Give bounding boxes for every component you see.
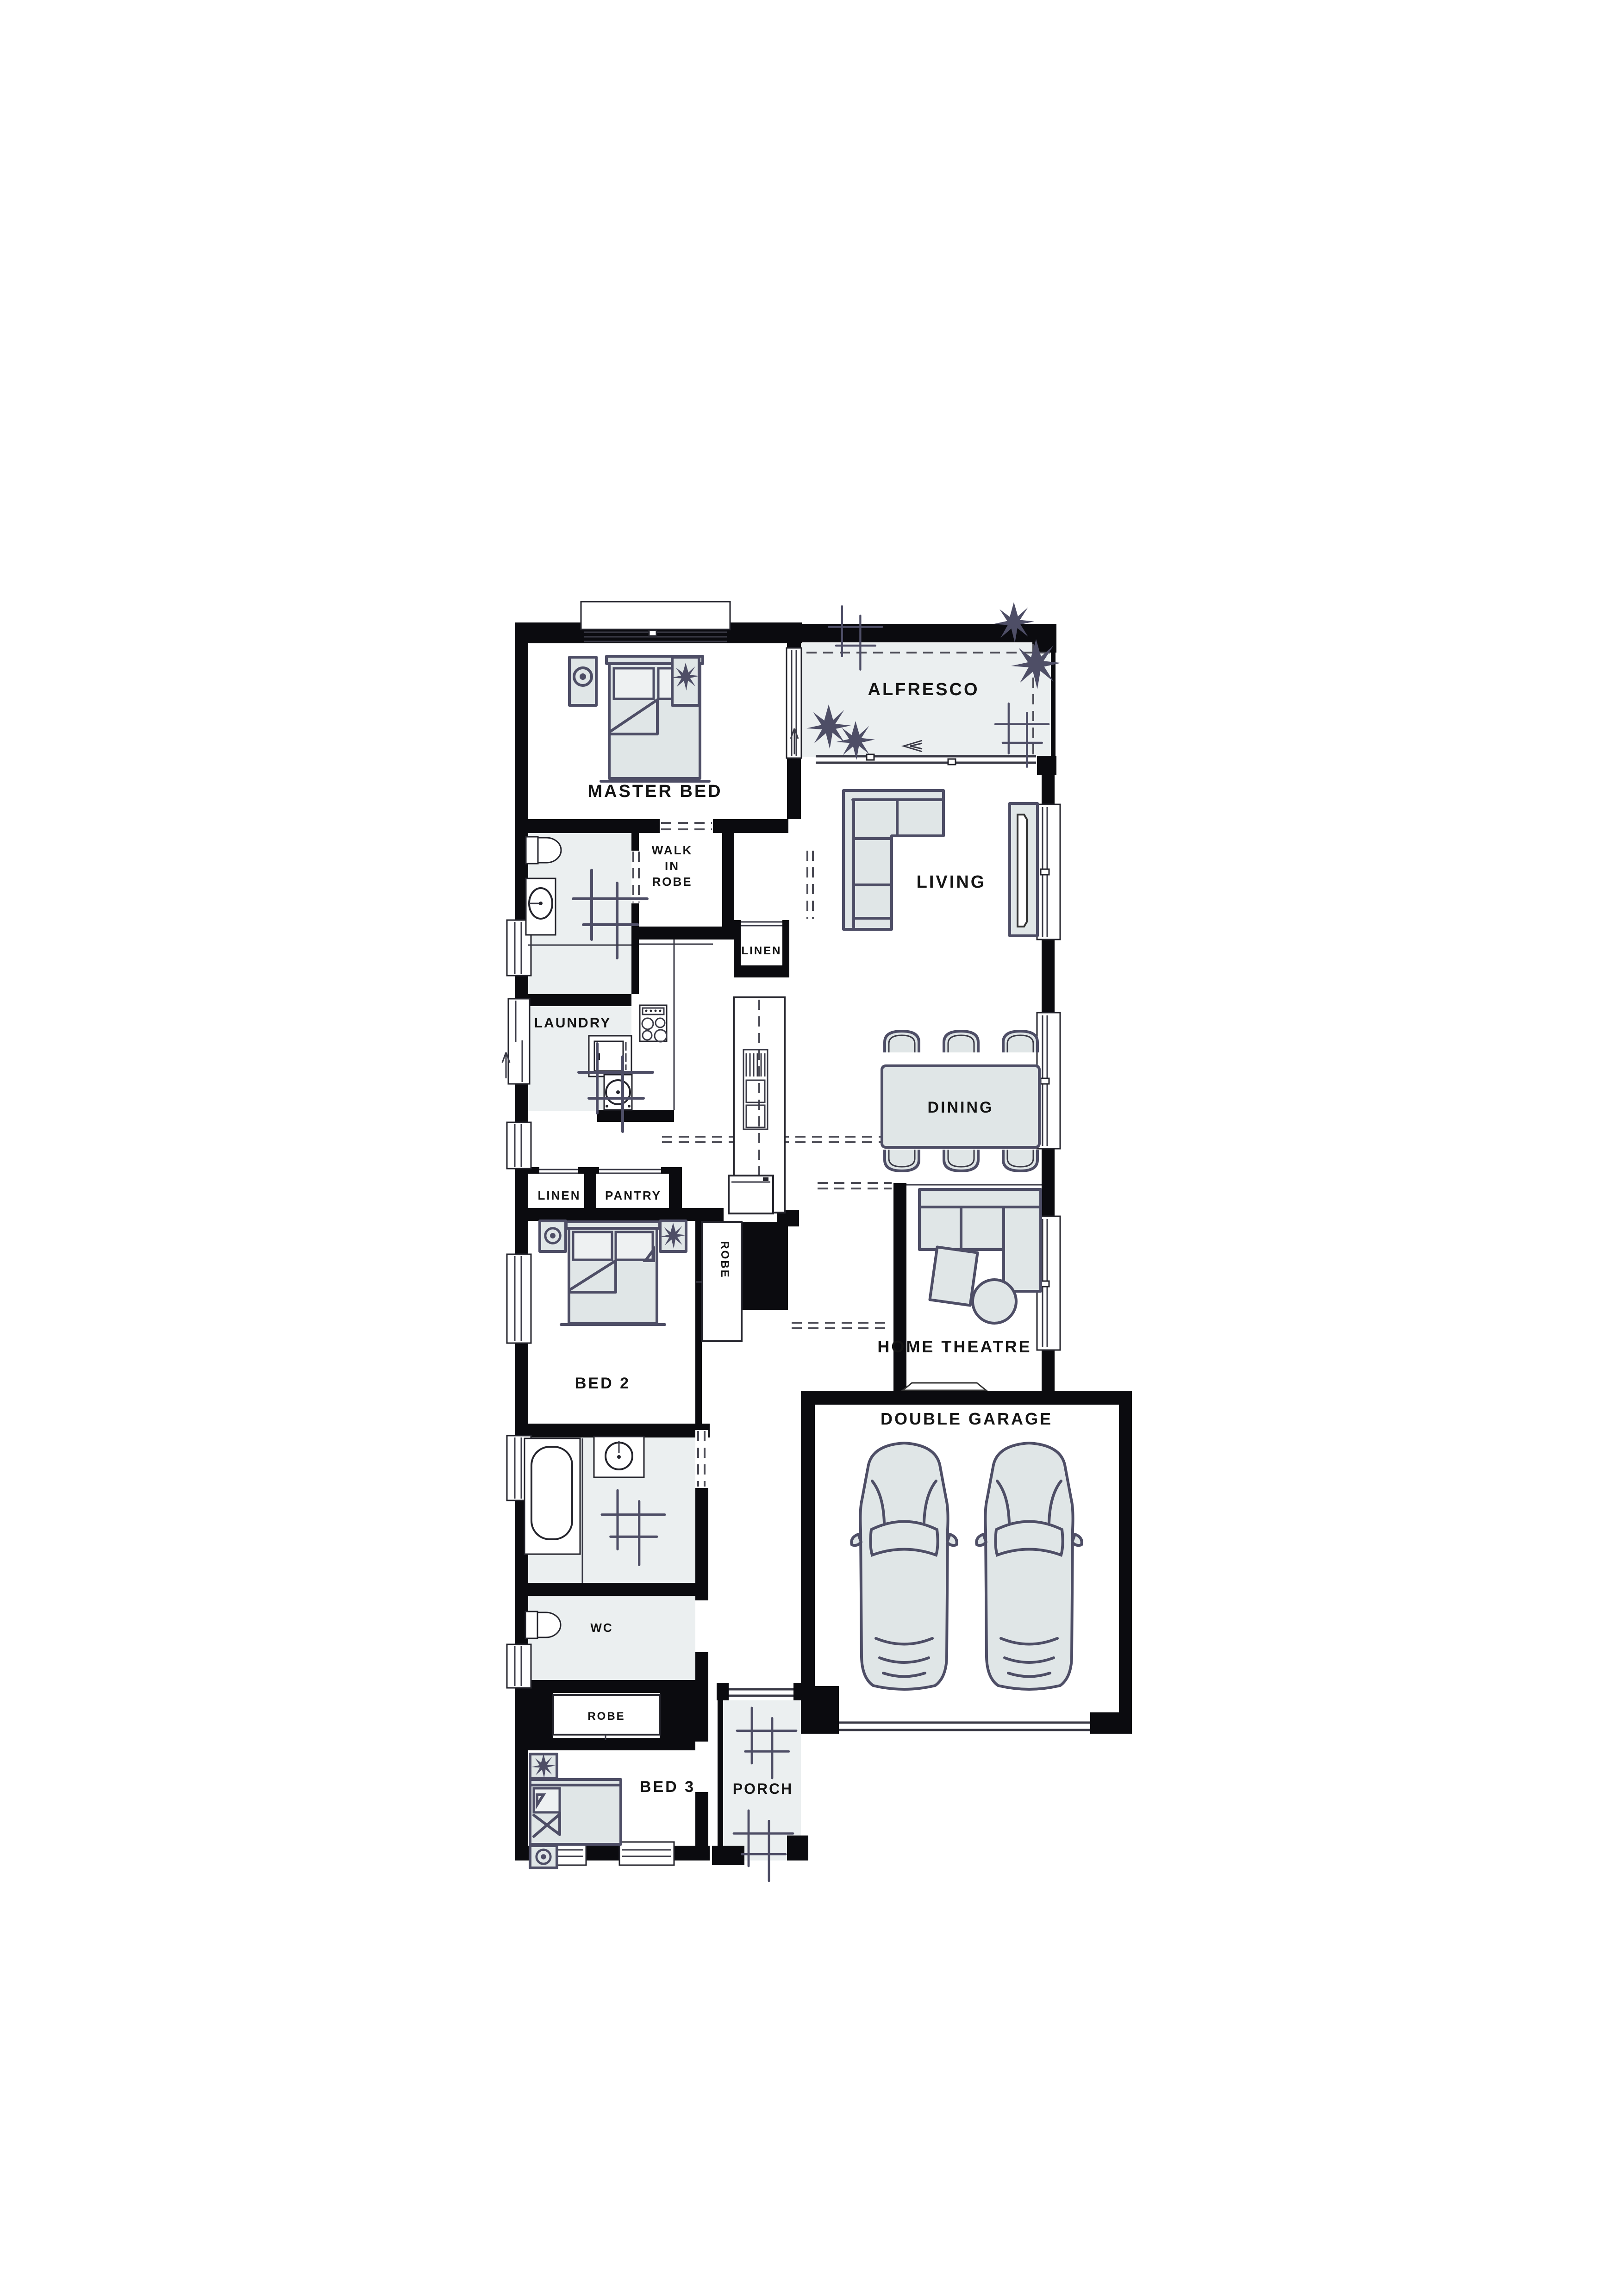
- master-bed-room: MASTER BED: [569, 656, 723, 801]
- home-theatre-label: HOME THEATRE: [877, 1337, 1031, 1356]
- bed-icon: [530, 1780, 621, 1844]
- living-window: [1037, 804, 1060, 940]
- laundry-door: [508, 999, 530, 1084]
- alfresco-label: ALFRESCO: [868, 680, 980, 699]
- linen-pantry: LINEN PANTRY: [538, 1170, 662, 1202]
- fridge-icon: [729, 1176, 773, 1213]
- robe-bed3-closet: ROBE: [553, 1695, 660, 1740]
- linen-label: LINEN: [538, 1188, 581, 1202]
- floor-plan-page: MASTER BED ALFRESCO WALK IN ROBE: [0, 0, 1624, 2296]
- robe-bed3-label: ROBE: [587, 1710, 625, 1723]
- linen-hall-label: LINEN: [742, 945, 782, 957]
- media-shelf-icon: [903, 1383, 986, 1390]
- bed2-window: [507, 1254, 531, 1343]
- dining-label: DINING: [928, 1099, 994, 1116]
- living-label: LIVING: [917, 872, 987, 892]
- front-door: [729, 1685, 793, 1700]
- vanity-icon: [526, 878, 556, 935]
- bed3-label: BED 3: [640, 1778, 695, 1796]
- bed2-room: BED 2 ROBE: [540, 1221, 742, 1392]
- pantry-label: PANTRY: [605, 1188, 662, 1202]
- bath-vanity-icon: [594, 1437, 644, 1477]
- theatre-sofa-icon: [919, 1189, 1041, 1323]
- ottoman-icon: [973, 1280, 1016, 1323]
- toilet-icon: [525, 1612, 561, 1638]
- wc-floor: [528, 1596, 695, 1680]
- bedside-table: [569, 657, 596, 705]
- alfresco-sliding-door: [816, 754, 1036, 765]
- robe-bed2-closet: ROBE: [696, 1222, 742, 1341]
- toilet-icon: [526, 837, 561, 864]
- svg-text:ROBE: ROBE: [652, 875, 692, 889]
- laundry-label: LAUNDRY: [534, 1015, 612, 1031]
- bed2-label: BED 2: [575, 1375, 631, 1392]
- garage: DOUBLE GARAGE: [851, 1409, 1081, 1689]
- porch-label: PORCH: [733, 1780, 793, 1797]
- dining-room: DINING: [882, 1031, 1039, 1171]
- bed-icon: [561, 1222, 665, 1325]
- linen-hall-closet: LINEN: [741, 922, 782, 957]
- tv-unit-icon: [1010, 803, 1037, 936]
- laundry-tub-icon: [604, 1075, 632, 1110]
- wc-label: WC: [590, 1621, 613, 1635]
- alfresco-floor: [801, 643, 1051, 757]
- tv-icon: [1018, 815, 1027, 927]
- void-storage: [741, 1222, 788, 1310]
- master-bed-label: MASTER BED: [587, 782, 722, 801]
- kitchen-window: [507, 1122, 531, 1169]
- wc-window: [507, 1644, 531, 1688]
- cooktop-icon: [640, 1005, 667, 1042]
- double-garage-label: DOUBLE GARAGE: [881, 1409, 1053, 1428]
- sofa-icon: [843, 790, 943, 929]
- svg-text:WALK: WALK: [652, 843, 693, 857]
- washing-machine-icon: [589, 1036, 631, 1076]
- living-room: LIVING: [843, 790, 1037, 936]
- floor-plan-drawing: MASTER BED ALFRESCO WALK IN ROBE: [0, 0, 1624, 2296]
- garage-door: [839, 1723, 1090, 1730]
- svg-text:IN: IN: [665, 859, 680, 873]
- robe-bed2-label: ROBE: [718, 1241, 731, 1278]
- bathtub-icon: [525, 1438, 580, 1554]
- bed3-window-right: [619, 1842, 674, 1865]
